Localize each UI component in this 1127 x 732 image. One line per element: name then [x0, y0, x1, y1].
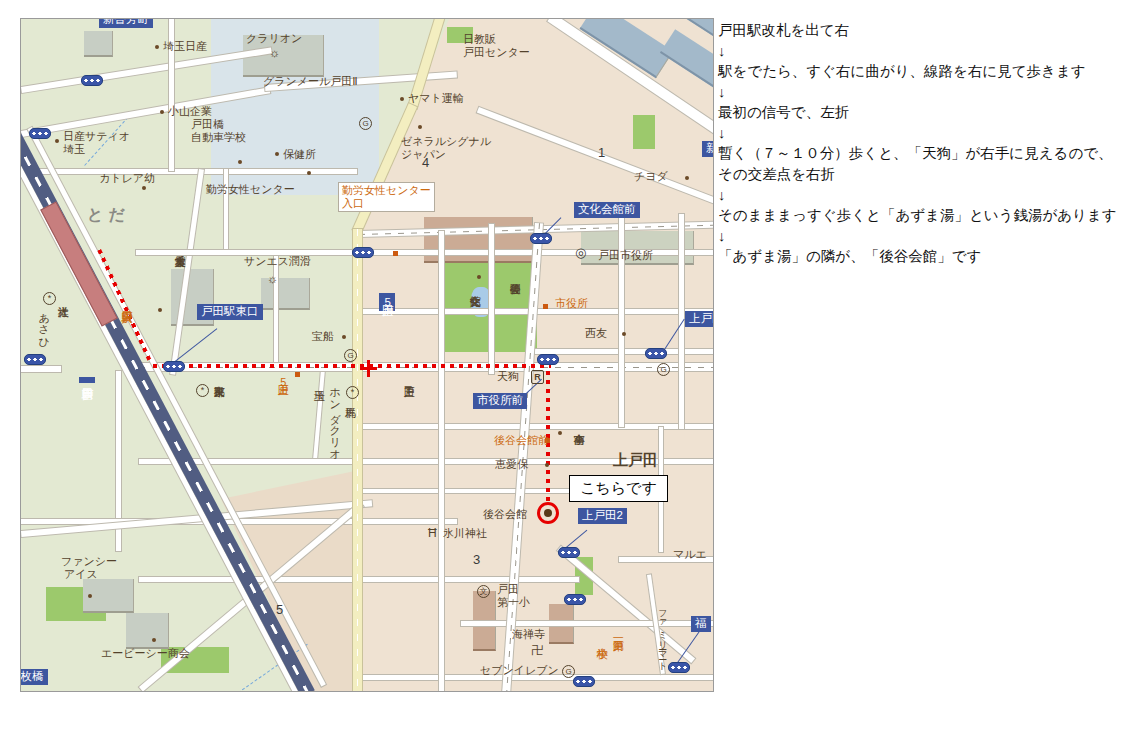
map-label: 海禅寺	[512, 628, 545, 641]
map-label: ヤマト運輸	[408, 92, 464, 105]
bus-label-right-clipped: 新	[702, 141, 714, 157]
road-number: 1	[598, 145, 605, 161]
direction-step: 「あずま湯」の隣が、「後谷会館」です	[718, 246, 1122, 267]
bus-label-kamitoda2: 上戸田2	[578, 508, 627, 524]
map-label: ファンシー アイス	[61, 555, 117, 581]
map-label: 日産サティオ 埼玉	[63, 130, 130, 156]
map-label: エービーシー商会	[101, 647, 190, 660]
direction-step: 戸田駅改札を出て右	[718, 20, 1122, 41]
route-map: ☼☼***◎文GGGGRĦ卍 新曽芳町戸田駅東口戸田駅西口上戸田5文化会館前市役…	[20, 18, 714, 692]
down-arrow: ↓	[718, 185, 1122, 206]
map-label: あさひ	[37, 305, 50, 343]
bus-label-toda-west-exit: 戸田駅西口	[79, 377, 95, 383]
map-label: 氷川神社	[443, 527, 487, 540]
map-label: ゼネラルシグナル ジャパン	[401, 135, 491, 161]
down-arrow: ↓	[718, 226, 1122, 247]
direction-step: 暫く（７～１０分）歩くと、「天狗」が右手に見えるので、その交差点を右折	[718, 143, 1122, 184]
map-label: チヨダ	[634, 170, 668, 183]
bus-label-kamitoda5: 上戸田5	[379, 293, 395, 311]
destination-callout: こちらです	[569, 475, 668, 502]
bus-label-toda-east-exit: 戸田駅東口	[197, 304, 263, 320]
map-label: ホンダクリオ	[328, 380, 341, 455]
label-kinro-josei-center-iriguchi: 勤労女性センター 入口	[338, 182, 435, 212]
map-label: ファミリーマート	[657, 604, 668, 666]
map-label: 日教販 戸田センター	[463, 33, 530, 59]
map-label: グランメール戸田Ⅱ	[263, 75, 358, 88]
map-label: クラリオン	[246, 32, 302, 45]
map-label: 恵愛保	[495, 458, 528, 471]
direction-step: 駅をでたら、すぐ右に曲がり、線路を右に見て歩きます	[718, 61, 1122, 82]
label-tengu: 天狗	[497, 370, 519, 383]
map-label: 保健所	[283, 148, 316, 161]
bus-label-fuku: 福	[691, 616, 711, 632]
map-label: 上戸田	[613, 451, 658, 469]
road-number: 5	[276, 602, 283, 618]
label-shiyakusho-stop: 市役所	[555, 297, 588, 310]
down-arrow: ↓	[718, 123, 1122, 144]
map-labels: 新曽芳町戸田駅東口戸田駅西口上戸田5文化会館前市役所前上戸田2上戸田五枚橋福新戸…	[21, 19, 713, 691]
map-label: 西友	[585, 327, 607, 340]
bus-label-shiyakusho-mae: 市役所前	[473, 393, 527, 409]
map-label: 戸田橋 自動車学校	[191, 118, 246, 144]
map-label: サンエス潤滑	[244, 255, 311, 268]
label-koya-kaikan: 後谷会館	[483, 508, 527, 521]
label-koyakaikan-mae-stop: 後谷会館前	[494, 434, 549, 447]
bus-label-maibashi: 五枚橋	[20, 669, 48, 685]
page: ☼☼***◎文GGGGRĦ卍 新曽芳町戸田駅東口戸田駅西口上戸田5文化会館前市役…	[0, 0, 1127, 732]
map-label: セブンイレブン	[480, 664, 559, 677]
map-label: 戸田市役所	[598, 249, 653, 262]
bus-label-bunkakaikan-mae: 文化会館前	[574, 202, 640, 218]
down-arrow: ↓	[718, 41, 1122, 62]
map-label: マルエ	[673, 548, 707, 561]
map-label: 埼玉日産	[163, 40, 207, 53]
map-label: カトレア幼	[99, 172, 155, 185]
map-label: 戸田 第一小	[497, 583, 530, 609]
direction-step: 最初の信号で、左折	[718, 102, 1122, 123]
map-label: 小山企業	[168, 105, 212, 118]
bus-label-shinzo: 新曽芳町	[99, 18, 153, 28]
station-name: とだ	[87, 205, 130, 224]
directions-panel: 戸田駅改札を出て右 ↓ 駅をでたら、すぐ右に曲がり、線路を右に見て歩きます ↓ …	[718, 20, 1122, 267]
label-kamitoda5-road: 上戸田5	[276, 376, 289, 388]
road-number: 3	[473, 552, 480, 568]
down-arrow: ↓	[718, 82, 1122, 103]
bus-label-kamitoda: 上戸田	[685, 311, 714, 327]
road-number: 4	[422, 155, 429, 171]
map-label: 宝船	[312, 330, 334, 343]
map-label: 勤労女性センター	[206, 183, 295, 196]
direction-step: そのまままっすぐ歩くと「あずま湯」という銭湯があります	[718, 205, 1122, 226]
